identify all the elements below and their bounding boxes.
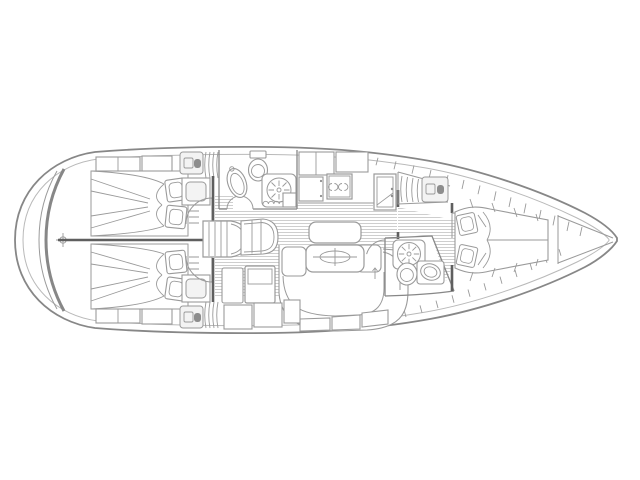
settee-arm-left [282,247,306,276]
vanity-locker [180,306,203,328]
salon-table [306,222,364,272]
counter [224,305,252,329]
washbasin [417,261,444,284]
yacht-floor-plan [0,0,640,480]
fridge [374,174,396,210]
stove [327,174,352,199]
berth-pillow [165,250,187,274]
berth-pillow [165,205,187,229]
galley-locker [299,177,323,201]
chart-table [245,266,275,303]
shower-seat [283,193,296,207]
vanity-locker [422,177,448,202]
berth-pillow [456,212,478,236]
berth-pillow [456,244,478,268]
nav-seat [222,268,243,303]
companionway [203,219,278,257]
salon-seat [241,219,278,255]
counter [284,300,300,323]
vanity-locker [180,152,203,174]
counter [254,303,282,327]
floor-plan-drawing [0,0,640,480]
